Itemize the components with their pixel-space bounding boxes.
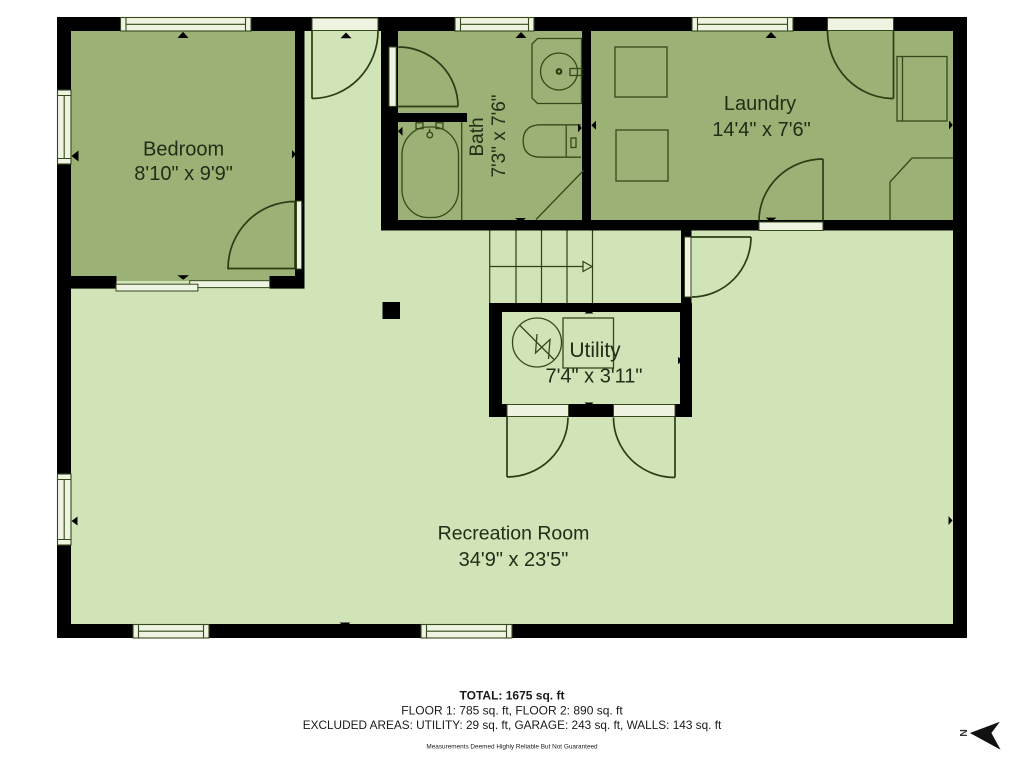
svg-text:TOTAL: 1675 sq. ft: TOTAL: 1675 sq. ft (460, 688, 565, 702)
svg-text:Measurements Deemed Highly Rel: Measurements Deemed Highly Reliable But … (426, 743, 598, 750)
svg-text:Laundry: Laundry (724, 93, 796, 115)
svg-text:14'4" x 7'6": 14'4" x 7'6" (712, 119, 811, 141)
svg-text:N: N (958, 729, 970, 737)
svg-text:Utility: Utility (569, 339, 621, 362)
svg-text:EXCLUDED AREAS: UTILITY: 29 sq: EXCLUDED AREAS: UTILITY: 29 sq. ft, GARA… (303, 718, 722, 732)
svg-text:FLOOR 1: 785 sq. ft, FLOOR 2:: FLOOR 1: 785 sq. ft, FLOOR 2: 890 sq. ft (401, 703, 623, 717)
svg-text:Bedroom: Bedroom (143, 139, 224, 161)
svg-text:8'10" x 9'9": 8'10" x 9'9" (134, 163, 233, 185)
svg-text:7'3" x 7'6": 7'3" x 7'6" (489, 94, 510, 177)
svg-text:34'9" x 23'5": 34'9" x 23'5" (459, 549, 569, 571)
svg-text:Bath: Bath (467, 117, 488, 156)
svg-text:7'4" x 3'11": 7'4" x 3'11" (545, 366, 642, 388)
svg-text:Recreation Room: Recreation Room (438, 523, 590, 545)
